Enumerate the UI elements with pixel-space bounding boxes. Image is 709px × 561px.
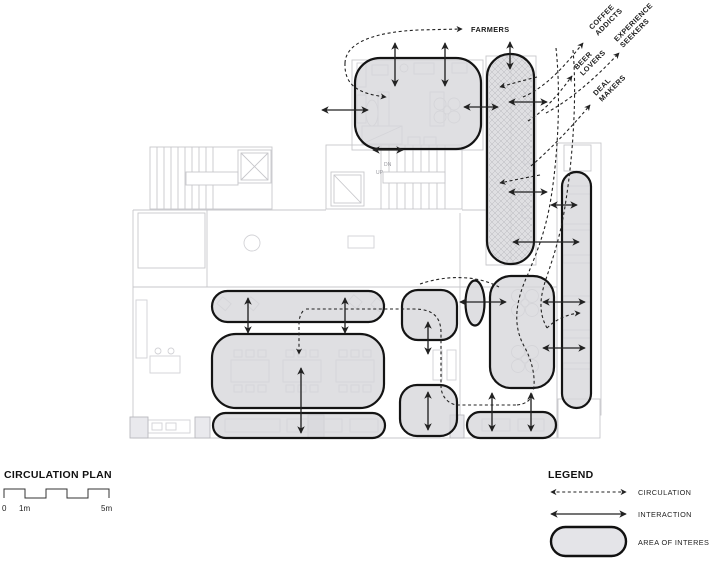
stairs-dn-label: DN bbox=[384, 162, 392, 168]
page-title: CIRCULATION PLAN bbox=[4, 469, 112, 481]
areas-of-interest bbox=[212, 54, 591, 438]
circulation-path bbox=[420, 278, 499, 287]
legend-area-symbol bbox=[551, 527, 626, 556]
legend-interaction-label: INTERACTION bbox=[638, 510, 692, 519]
stair-core-left bbox=[150, 147, 272, 209]
legend-circulation-label: CIRCULATION bbox=[638, 488, 691, 497]
circulation-path bbox=[517, 394, 532, 405]
scale-label-0: 0 bbox=[2, 504, 7, 513]
area-center-room bbox=[402, 290, 457, 340]
corridor-hatch bbox=[489, 56, 532, 262]
scale-label-5m: 5m bbox=[101, 504, 112, 513]
area-right-lounge bbox=[490, 276, 554, 388]
area-meeting-room bbox=[212, 334, 384, 408]
scale-bar bbox=[4, 489, 109, 498]
area-cafe bbox=[355, 58, 481, 149]
scale-label-1m: 1m bbox=[19, 504, 30, 513]
legend-title: LEGEND bbox=[548, 469, 594, 481]
farmers-label: FARMERS bbox=[471, 25, 509, 34]
stair-core-center: DN UP bbox=[326, 145, 462, 209]
area-oval-node bbox=[466, 281, 485, 326]
area-bottom-right-bench bbox=[467, 412, 556, 438]
legend: LEGEND CIRCULATION INTERACTION AREA OF I… bbox=[548, 469, 709, 556]
legend-area-label: AREA OF INTEREST bbox=[638, 538, 709, 547]
circulation-plan-page: DN UP bbox=[0, 0, 709, 561]
stairs-up-label: UP bbox=[376, 170, 384, 176]
area-bottom-bench bbox=[213, 413, 385, 438]
footer: CIRCULATION PLAN 0 1m 5m bbox=[2, 469, 112, 513]
area-right-gallery bbox=[562, 172, 591, 408]
area-lounge-strip bbox=[212, 291, 384, 322]
